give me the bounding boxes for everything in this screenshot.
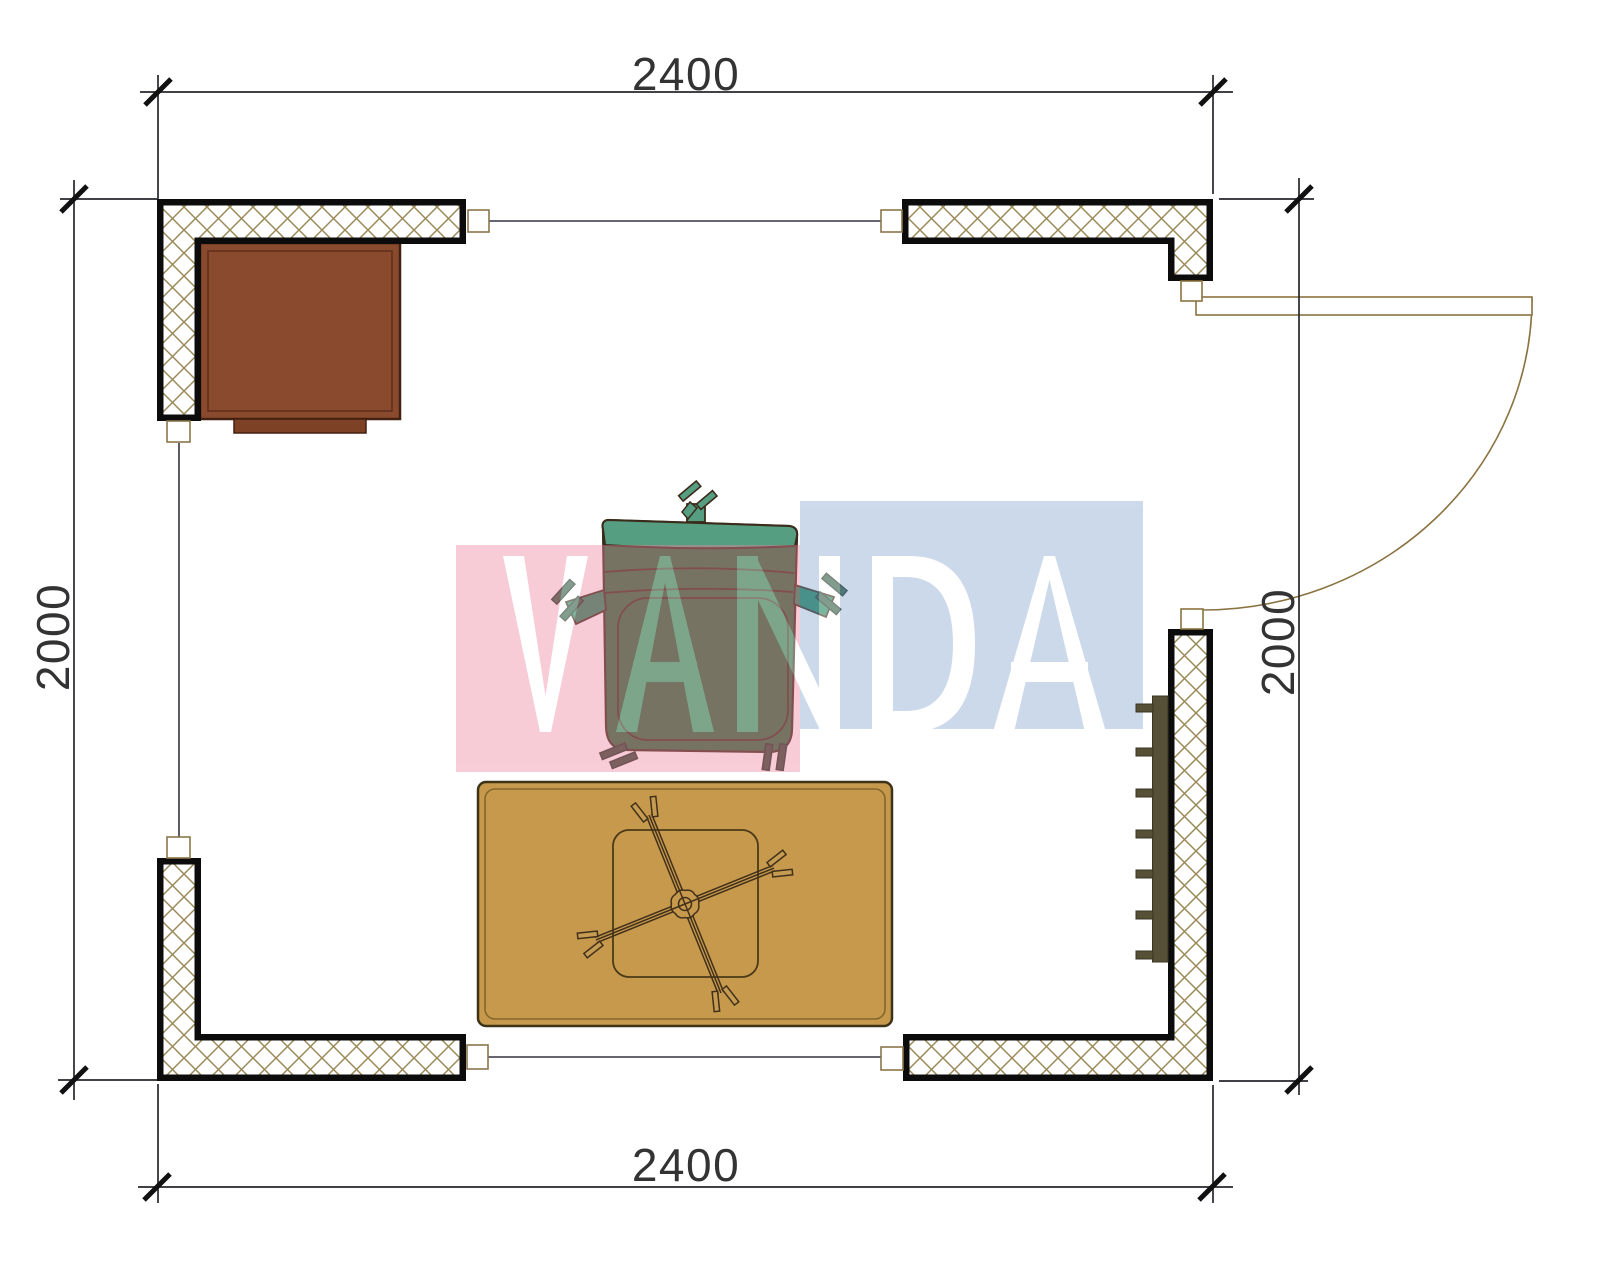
svg-text:2000: 2000 <box>27 583 79 691</box>
svg-text:2000: 2000 <box>1252 588 1304 696</box>
svg-text:2400: 2400 <box>632 1139 740 1191</box>
svg-text:2400: 2400 <box>632 48 740 100</box>
